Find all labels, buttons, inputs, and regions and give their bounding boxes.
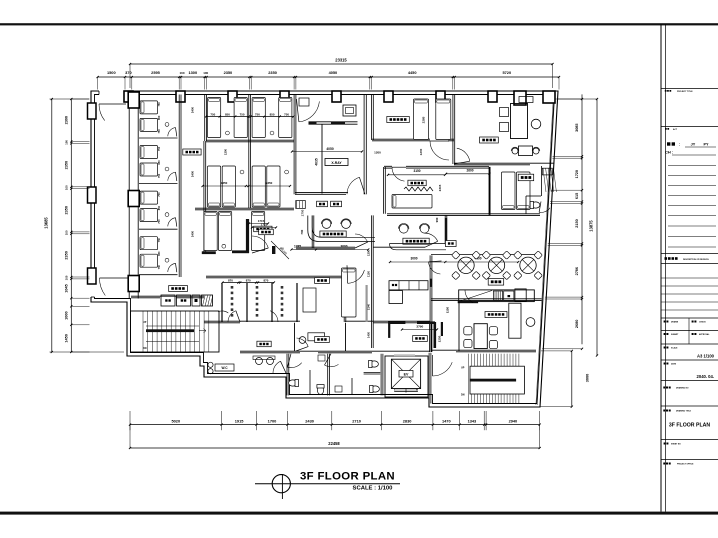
- svg-text:2040. 04.: 2040. 04.: [697, 374, 714, 379]
- svg-text:4450: 4450: [408, 70, 417, 75]
- svg-text:100: 100: [203, 71, 208, 75]
- svg-text:DESCRIPTION OF REVISION: DESCRIPTION OF REVISION: [683, 259, 709, 261]
- svg-text:1200: 1200: [366, 249, 370, 256]
- svg-text:4050: 4050: [329, 70, 338, 75]
- svg-text:1000: 1000: [65, 311, 69, 319]
- svg-text:100: 100: [65, 230, 69, 235]
- svg-text:750: 750: [210, 113, 215, 117]
- svg-text:4035: 4035: [315, 158, 319, 166]
- svg-text:1500: 1500: [107, 70, 116, 75]
- svg-text:13685: 13685: [44, 217, 49, 229]
- svg-text:2940: 2940: [509, 418, 518, 423]
- svg-text:1343: 1343: [468, 418, 477, 423]
- svg-text:DRAWING TITLE: DRAWING TITLE: [676, 410, 692, 413]
- svg-text:PROJECT OFFICE: PROJECT OFFICE: [677, 464, 694, 466]
- svg-text:750: 750: [157, 102, 161, 107]
- svg-text:2350: 2350: [65, 206, 69, 214]
- svg-text:850: 850: [157, 115, 161, 120]
- svg-text:2350: 2350: [65, 161, 69, 169]
- svg-text:APPROVAL: APPROVAL: [699, 333, 710, 336]
- svg-text:750: 750: [157, 146, 161, 151]
- svg-text:DRAWN: DRAWN: [671, 321, 679, 324]
- svg-text:370: 370: [125, 70, 132, 75]
- svg-text:UP: UP: [461, 367, 465, 370]
- svg-text:2830: 2830: [403, 418, 412, 423]
- svg-text:2300: 2300: [65, 116, 69, 124]
- svg-text:700: 700: [300, 229, 304, 234]
- svg-text:870: 870: [246, 279, 251, 283]
- svg-text:100: 100: [65, 185, 69, 190]
- svg-text:1385: 1385: [294, 245, 301, 249]
- svg-text:1200: 1200: [374, 151, 381, 155]
- svg-text:PROJECT TITLE: PROJECT TITLE: [677, 91, 693, 93]
- svg-text:DN: DN: [143, 347, 147, 350]
- svg-text:2350: 2350: [65, 251, 69, 259]
- svg-text:2350: 2350: [221, 181, 228, 185]
- svg-text:850: 850: [157, 205, 161, 210]
- svg-text:2786: 2786: [575, 267, 579, 275]
- svg-text:SCALE : 1/100: SCALE : 1/100: [353, 486, 394, 492]
- svg-text:2710: 2710: [352, 418, 361, 423]
- svg-text:870: 870: [263, 279, 268, 283]
- svg-text:CHECK: CHECK: [699, 322, 706, 324]
- svg-text:750: 750: [157, 264, 161, 269]
- svg-text:850: 850: [157, 160, 161, 165]
- svg-text:3000: 3000: [340, 245, 347, 249]
- svg-text:1915: 1915: [235, 418, 244, 423]
- svg-text:2600: 2600: [466, 169, 473, 173]
- svg-text:3085: 3085: [575, 123, 579, 131]
- svg-text:1470: 1470: [442, 418, 451, 423]
- svg-text:750: 750: [157, 192, 161, 197]
- svg-text:1250: 1250: [437, 335, 441, 342]
- svg-text:1715: 1715: [261, 223, 268, 227]
- svg-text:2430: 2430: [305, 418, 314, 423]
- svg-text:1700: 1700: [301, 209, 305, 216]
- svg-text:100: 100: [179, 71, 184, 75]
- svg-text:1150: 1150: [366, 271, 370, 278]
- svg-text:3000: 3000: [410, 257, 417, 261]
- svg-text:2315: 2315: [438, 184, 442, 191]
- svg-text:750: 750: [157, 173, 161, 178]
- svg-text:1700: 1700: [268, 418, 277, 423]
- svg-text:A3 1/100: A3 1/100: [697, 354, 715, 359]
- svg-text:1720: 1720: [575, 170, 579, 178]
- svg-text:1300: 1300: [188, 70, 197, 75]
- svg-text:2400: 2400: [191, 106, 195, 113]
- svg-text:4050: 4050: [326, 147, 334, 151]
- svg-text:X-RAY: X-RAY: [331, 161, 342, 165]
- svg-text:DRAWING NO: DRAWING NO: [676, 387, 689, 390]
- svg-text:750: 750: [240, 113, 245, 117]
- svg-text:3000: 3000: [586, 374, 590, 382]
- svg-text:2595: 2595: [151, 70, 160, 75]
- svg-text:2350: 2350: [224, 70, 233, 75]
- svg-text:100: 100: [65, 275, 69, 280]
- svg-text:23315: 23315: [335, 58, 347, 63]
- svg-text:5020: 5020: [171, 418, 180, 423]
- svg-text:5720: 5720: [502, 70, 511, 75]
- svg-text:750: 750: [284, 113, 289, 117]
- svg-text:2350: 2350: [266, 181, 273, 185]
- svg-text:750: 750: [157, 219, 161, 224]
- svg-text:750: 750: [255, 113, 260, 117]
- svg-text:3F FLOOR PLAN: 3F FLOOR PLAN: [669, 423, 710, 429]
- svg-text::: :: [679, 142, 680, 147]
- svg-text:2285: 2285: [422, 116, 426, 123]
- svg-text:3F FLOOR PLAN: 3F FLOOR PLAN: [300, 471, 395, 483]
- svg-text:JY: JY: [691, 143, 696, 147]
- svg-text:13875: 13875: [589, 220, 594, 232]
- svg-text:1150: 1150: [446, 306, 450, 313]
- svg-text:22458: 22458: [328, 441, 340, 446]
- svg-text:1045: 1045: [65, 284, 69, 292]
- svg-text:100: 100: [65, 140, 69, 145]
- svg-text:2680: 2680: [575, 320, 579, 328]
- svg-text:3150: 3150: [413, 169, 420, 173]
- svg-text:750: 750: [157, 129, 161, 134]
- svg-text:850: 850: [225, 113, 230, 117]
- svg-text:850: 850: [157, 251, 161, 256]
- svg-text:870: 870: [228, 279, 233, 283]
- svg-text:DATE: DATE: [671, 363, 677, 366]
- svg-text:SCALE: SCALE: [671, 347, 678, 350]
- svg-text:SHEET NO: SHEET NO: [671, 444, 681, 446]
- svg-text:PY: PY: [703, 143, 709, 147]
- svg-text:3790: 3790: [416, 325, 423, 329]
- svg-text:615: 615: [575, 193, 579, 199]
- svg-text:750: 750: [157, 237, 161, 242]
- svg-text:SUBMIT: SUBMIT: [671, 334, 679, 336]
- svg-text:CH :: CH :: [665, 150, 673, 155]
- svg-text:2150: 2150: [575, 219, 579, 227]
- svg-text:900: 900: [435, 217, 439, 222]
- svg-text:2400: 2400: [191, 230, 195, 237]
- svg-text:1200: 1200: [419, 148, 423, 155]
- svg-text:1200: 1200: [224, 148, 228, 155]
- svg-text:EV: EV: [404, 373, 409, 377]
- svg-text:DN: DN: [461, 394, 465, 397]
- svg-text:850: 850: [270, 113, 275, 117]
- svg-text:1450: 1450: [366, 331, 370, 338]
- svg-text:2350: 2350: [268, 70, 277, 75]
- svg-text:400: 400: [280, 248, 285, 251]
- svg-text:2400: 2400: [191, 170, 195, 177]
- svg-text:1450: 1450: [65, 334, 69, 342]
- svg-text:W.C: W.C: [221, 366, 228, 370]
- svg-text:UP: UP: [143, 321, 147, 324]
